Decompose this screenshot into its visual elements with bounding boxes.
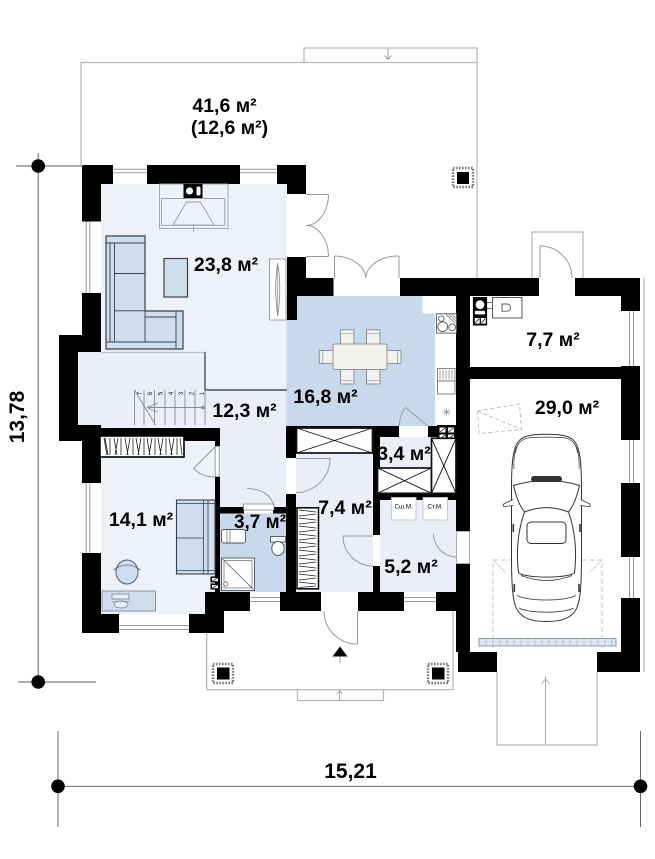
svg-text:3,7 м²: 3,7 м² (234, 512, 286, 533)
svg-text:14,1 м²: 14,1 м² (109, 509, 174, 531)
svg-text:29,0 м²: 29,0 м² (535, 397, 600, 419)
svg-text:Ст.М.: Ст.М. (427, 504, 443, 511)
svg-text:12,3 м²: 12,3 м² (212, 400, 277, 422)
svg-text:5,2 м²: 5,2 м² (384, 556, 438, 578)
svg-text:23,8 м²: 23,8 м² (194, 254, 259, 276)
svg-text:15,21: 15,21 (324, 760, 377, 783)
svg-text:Сш.М.: Сш.М. (395, 504, 414, 511)
svg-text:(12,6 м²): (12,6 м²) (191, 117, 268, 139)
svg-text:7,7 м²: 7,7 м² (526, 329, 580, 351)
svg-text:41,6 м²: 41,6 м² (192, 95, 257, 117)
svg-text:16,8 м²: 16,8 м² (293, 386, 358, 408)
svg-text:13,78: 13,78 (6, 390, 29, 443)
svg-text:3,4 м²: 3,4 м² (377, 443, 431, 465)
svg-text:7,4 м²: 7,4 м² (318, 497, 372, 519)
